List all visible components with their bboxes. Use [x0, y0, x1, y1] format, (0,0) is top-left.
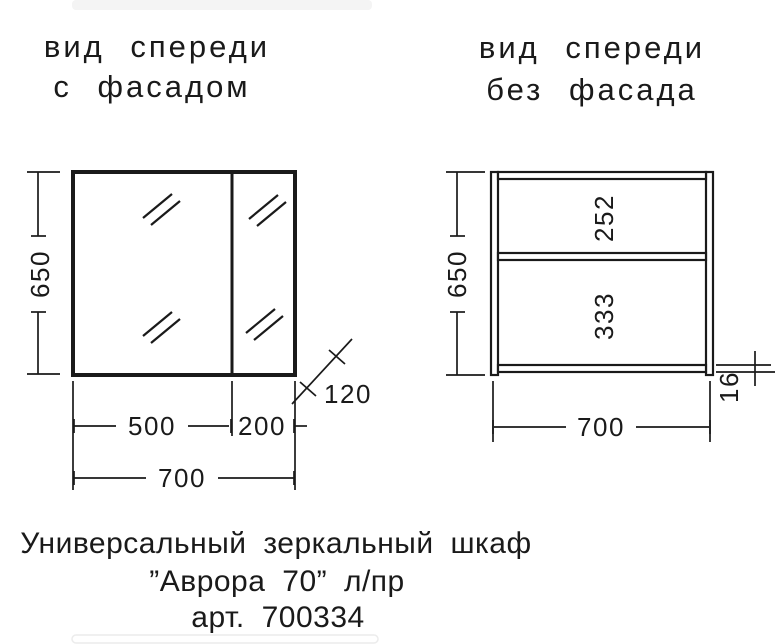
caption-block: Универсальный зеркальный шкаф ”Аврора 70… — [20, 527, 531, 634]
right-view: вид спереди без фасада 252 333 650 — [442, 30, 775, 442]
right-view-title-line2: без фасада — [486, 72, 698, 107]
right-width-dim-label: 700 — [577, 412, 625, 442]
upper-compartment-dim-label: 252 — [589, 194, 619, 242]
left-view-title-line2: с фасадом — [53, 69, 250, 104]
mirror-hatch-door-lower — [143, 312, 180, 343]
depth-dim-label: 120 — [324, 379, 372, 409]
right-height-dimension: 650 — [442, 172, 485, 375]
right-view-title-line1: вид спереди — [479, 30, 705, 65]
depth-dimension: 120 — [292, 339, 372, 409]
lower-compartment-dim-label: 333 — [589, 292, 619, 340]
caption-article-number: арт. 700334 — [191, 601, 364, 634]
technical-drawing-page: вид спереди с фасадом — [0, 0, 775, 644]
left-height-dimension: 650 — [25, 172, 60, 374]
scan-artifact-top — [72, 0, 372, 10]
mirror-hatch-side-upper — [249, 195, 286, 226]
caption-product-name: Универсальный зеркальный шкаф — [20, 527, 531, 560]
mirror-hatch-door-upper — [143, 194, 180, 225]
carcass-top-panel — [498, 172, 706, 179]
mirror-hatch-side-lower — [246, 309, 283, 340]
right-height-dim-label: 650 — [442, 250, 472, 298]
left-view-title-line1: вид спереди — [44, 29, 270, 64]
cabinet-front-outline — [73, 172, 295, 375]
left-view: вид спереди с фасадом — [25, 29, 372, 493]
total-width-dim-label: 700 — [158, 463, 206, 493]
carcass-right-side-panel — [706, 172, 713, 375]
drawing-canvas: вид спереди с фасадом — [0, 0, 775, 644]
caption-model-name: ”Аврора 70” л/пр — [149, 565, 404, 598]
left-height-dim-label: 650 — [25, 250, 55, 298]
carcass-bottom-panel — [498, 365, 706, 372]
scan-artifact-bottom — [72, 635, 378, 643]
panel-thickness-dimension: 16 — [714, 351, 775, 403]
carcass-left-side-panel — [491, 172, 498, 375]
door-width-dim-label: 500 — [128, 411, 176, 441]
carcass-middle-shelf — [498, 253, 706, 260]
left-width-dimensions: 500 200 700 — [73, 381, 307, 493]
right-width-dimension: 700 — [493, 381, 710, 442]
side-width-dim-label: 200 — [238, 411, 286, 441]
panel-thickness-dim-label: 16 — [714, 371, 744, 403]
